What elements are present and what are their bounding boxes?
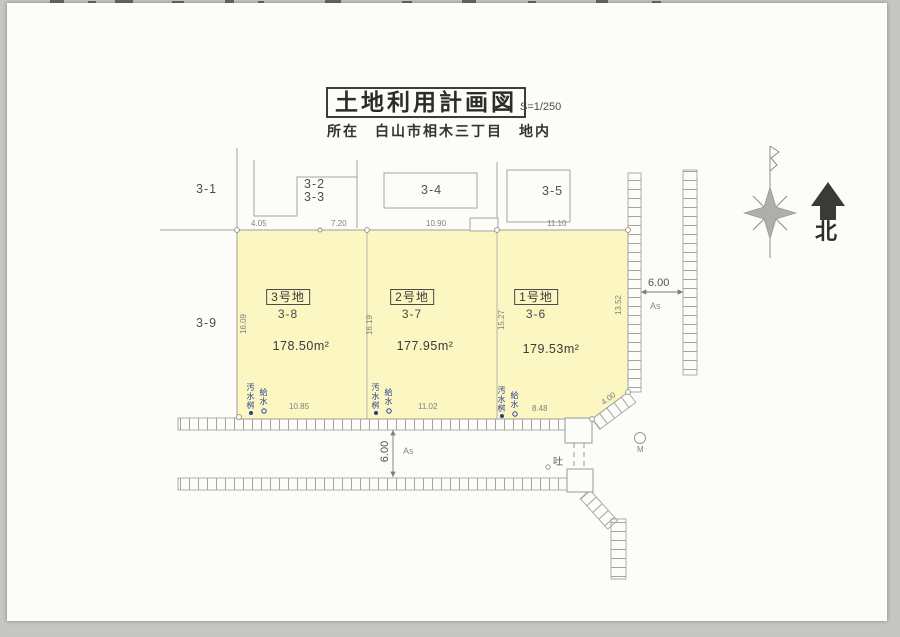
parcel-3-name: 3号地: [266, 289, 310, 305]
sewer-basin-dot: [249, 411, 253, 415]
water-supply-label: 給水: [384, 388, 392, 406]
dim-top-2: 7.20: [331, 220, 347, 228]
parcel-1-name: 1号地: [514, 289, 558, 305]
site-location: 所在 白山市相木三丁目 地内: [327, 124, 551, 138]
sewer-basin-dot: [374, 411, 378, 415]
catch-basin-lower: [567, 469, 593, 492]
neighbor-lot-3-1: 3-1: [196, 183, 217, 196]
dim-bottom-3: 8.48: [532, 405, 548, 413]
parcel-3-lot: 3-8: [278, 308, 298, 320]
dim-top-3: 10.90: [426, 220, 446, 228]
parcel-1-lot: 3-6: [526, 308, 546, 320]
neighbor-lot-lines: [160, 148, 570, 231]
parcel-1-area: 179.53m²: [523, 343, 580, 356]
drawing-title: 土地利用計画図: [326, 87, 526, 118]
catch-basin-upper: [565, 418, 592, 443]
parcel-2-lot: 3-7: [402, 308, 422, 320]
manhole-label: M: [637, 446, 644, 454]
sewer-basin-label: 汚水桝: [497, 386, 505, 413]
dim-side-left: 16.09: [240, 314, 248, 334]
north-arrow-icon: [811, 182, 845, 220]
water-supply-label: 給水: [259, 388, 267, 406]
east-road-west-gutter: [628, 173, 641, 392]
parcel-2-area: 177.95m²: [397, 340, 454, 353]
east-road-surface: As: [650, 302, 661, 311]
north-label: 北: [815, 221, 837, 243]
outlet-label: 吐: [553, 458, 563, 468]
south-road-north-gutter: [178, 418, 567, 430]
southeast-gutter-diagonal: [580, 490, 617, 529]
dim-side-div2: 15.27: [498, 310, 506, 330]
dim-side-right: 13.52: [615, 295, 623, 315]
dim-south-road-width: 6.00: [380, 441, 391, 462]
compass-star: [744, 187, 796, 239]
sewer-basin-dot: [500, 414, 504, 418]
water-supply-label: 給水: [510, 391, 518, 409]
south-road-south-gutter: [178, 478, 570, 490]
drawing-scale: S=1/250: [520, 102, 561, 113]
neighbor-lot-3-9: 3-9: [196, 317, 217, 330]
scan-artifacts: [50, 0, 661, 3]
neighbor-lot-3-3: 3-3: [304, 191, 325, 204]
scanned-plan-page: 土地利用計画図 S=1/250 所在 白山市相木三丁目 地内 3-1 3-2 3…: [0, 0, 900, 637]
dim-top-1: 4.05: [251, 220, 267, 228]
dim-top-4: 11.10: [547, 220, 566, 228]
south-road-surface: As: [403, 447, 414, 456]
sewer-basin-label: 汚水桝: [246, 383, 254, 410]
flag-zigzag: [770, 146, 779, 171]
manhole-circle: [635, 433, 646, 444]
outlet-circle: [546, 465, 550, 469]
parcel-area-polygon: [237, 230, 628, 419]
compass-rose: [744, 146, 796, 258]
sewer-basin-label: 汚水桝: [371, 383, 379, 410]
dim-bottom-2: 11.02: [418, 403, 437, 411]
parcel-3-area: 178.50m²: [273, 340, 330, 353]
dim-east-road-width: 6.00: [648, 278, 669, 289]
dim-side-div1: 16.19: [366, 315, 374, 335]
southeast-gutter-vertical: [611, 519, 626, 579]
dim-bottom-1: 10.85: [289, 403, 309, 411]
east-road-east-gutter: [683, 170, 697, 375]
parcel-2-name: 2号地: [390, 289, 434, 305]
neighbor-lot-3-2: 3-2: [304, 178, 325, 191]
neighbor-lot-3-5: 3-5: [542, 185, 563, 198]
neighbor-lot-3-4: 3-4: [421, 184, 442, 197]
